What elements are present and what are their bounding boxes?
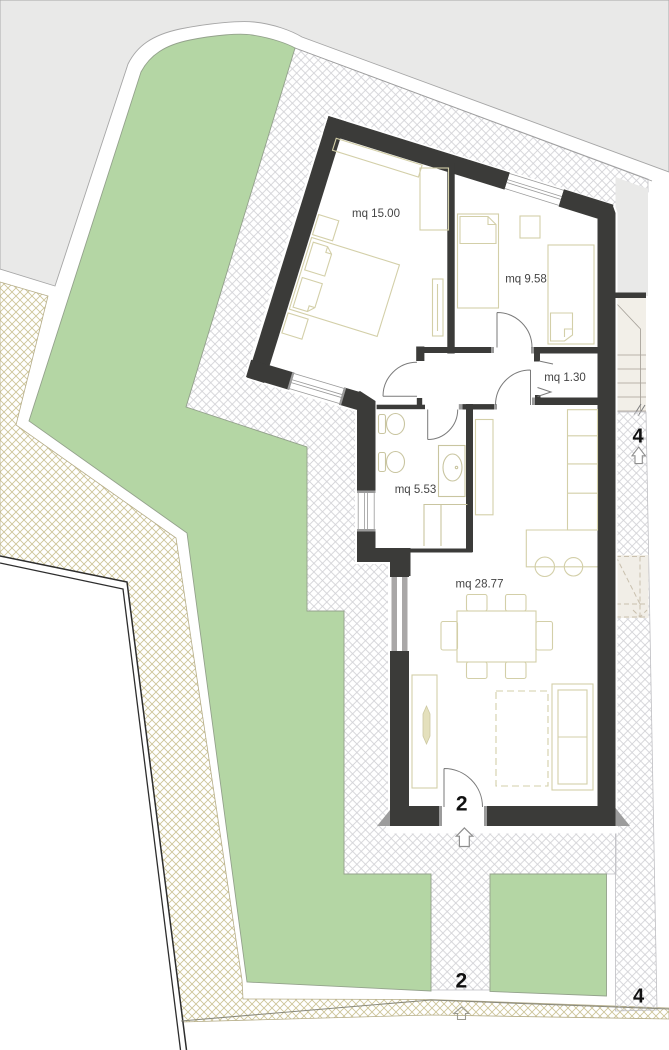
svg-text:mq 28.77: mq 28.77 bbox=[456, 579, 504, 591]
svg-text:2: 2 bbox=[455, 969, 467, 992]
svg-text:4: 4 bbox=[633, 986, 645, 1008]
svg-text:mq 15.00: mq 15.00 bbox=[352, 208, 400, 220]
svg-text:4: 4 bbox=[632, 426, 644, 448]
svg-text:mq 9.58: mq 9.58 bbox=[505, 274, 547, 286]
svg-text:mq 1.30: mq 1.30 bbox=[544, 372, 586, 384]
svg-text:mq 5.53: mq 5.53 bbox=[395, 484, 437, 496]
svg-text:2: 2 bbox=[456, 793, 468, 816]
